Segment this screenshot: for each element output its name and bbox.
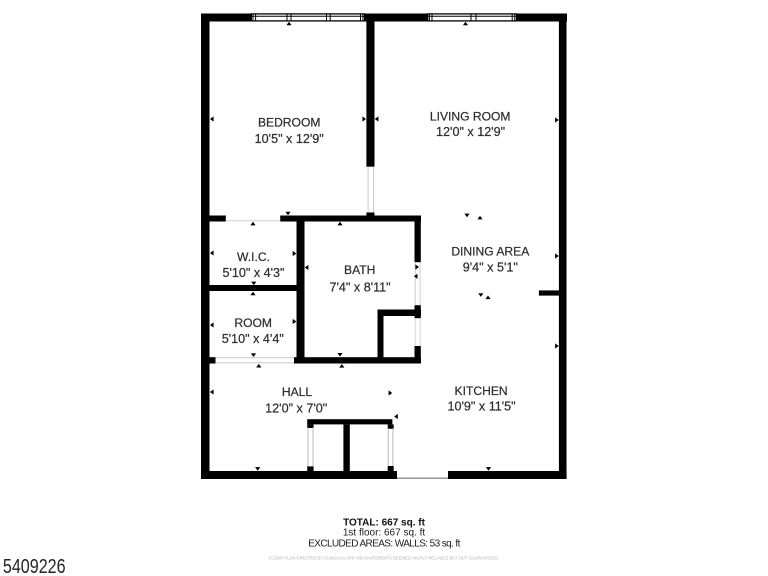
svg-text:7'4" x 8'11": 7'4" x 8'11" xyxy=(330,280,391,294)
svg-text:5'10" x 4'3": 5'10" x 4'3" xyxy=(222,266,284,280)
svg-text:HALL: HALL xyxy=(282,385,313,399)
svg-text:BATH: BATH xyxy=(344,263,375,277)
svg-text:DINING AREA: DINING AREA xyxy=(451,244,530,258)
svg-text:W.I.C.: W.I.C. xyxy=(237,250,270,264)
svg-text:10'5" x 12'9": 10'5" x 12'9" xyxy=(255,132,324,146)
svg-text:12'0" x 7'0": 12'0" x 7'0" xyxy=(265,401,327,415)
svg-text:LIVING ROOM: LIVING ROOM xyxy=(430,109,511,123)
svg-text:12'0" x 12'9": 12'0" x 12'9" xyxy=(436,125,505,139)
svg-text:9'4" x 5'1": 9'4" x 5'1" xyxy=(463,261,518,275)
svg-text:1st floor: 667 sq. ft: 1st floor: 667 sq. ft xyxy=(343,527,425,538)
svg-text:10'9" x 11'5": 10'9" x 11'5" xyxy=(448,400,516,414)
svg-text:KITCHEN: KITCHEN xyxy=(455,384,508,398)
svg-text:EXCLUDED AREAS: WALLS: 53 sq.: EXCLUDED AREAS: WALLS: 53 sq. ft xyxy=(308,539,460,550)
svg-text:5409226: 5409226 xyxy=(3,556,66,576)
svg-text:FLOOR PLAN CREATED BY CUBICASA: FLOOR PLAN CREATED BY CUBICASA APP. MEAS… xyxy=(269,555,499,560)
svg-text:5'10" x 4'4": 5'10" x 4'4" xyxy=(222,332,284,346)
svg-text:BEDROOM: BEDROOM xyxy=(258,116,321,130)
svg-text:ROOM: ROOM xyxy=(234,316,272,330)
